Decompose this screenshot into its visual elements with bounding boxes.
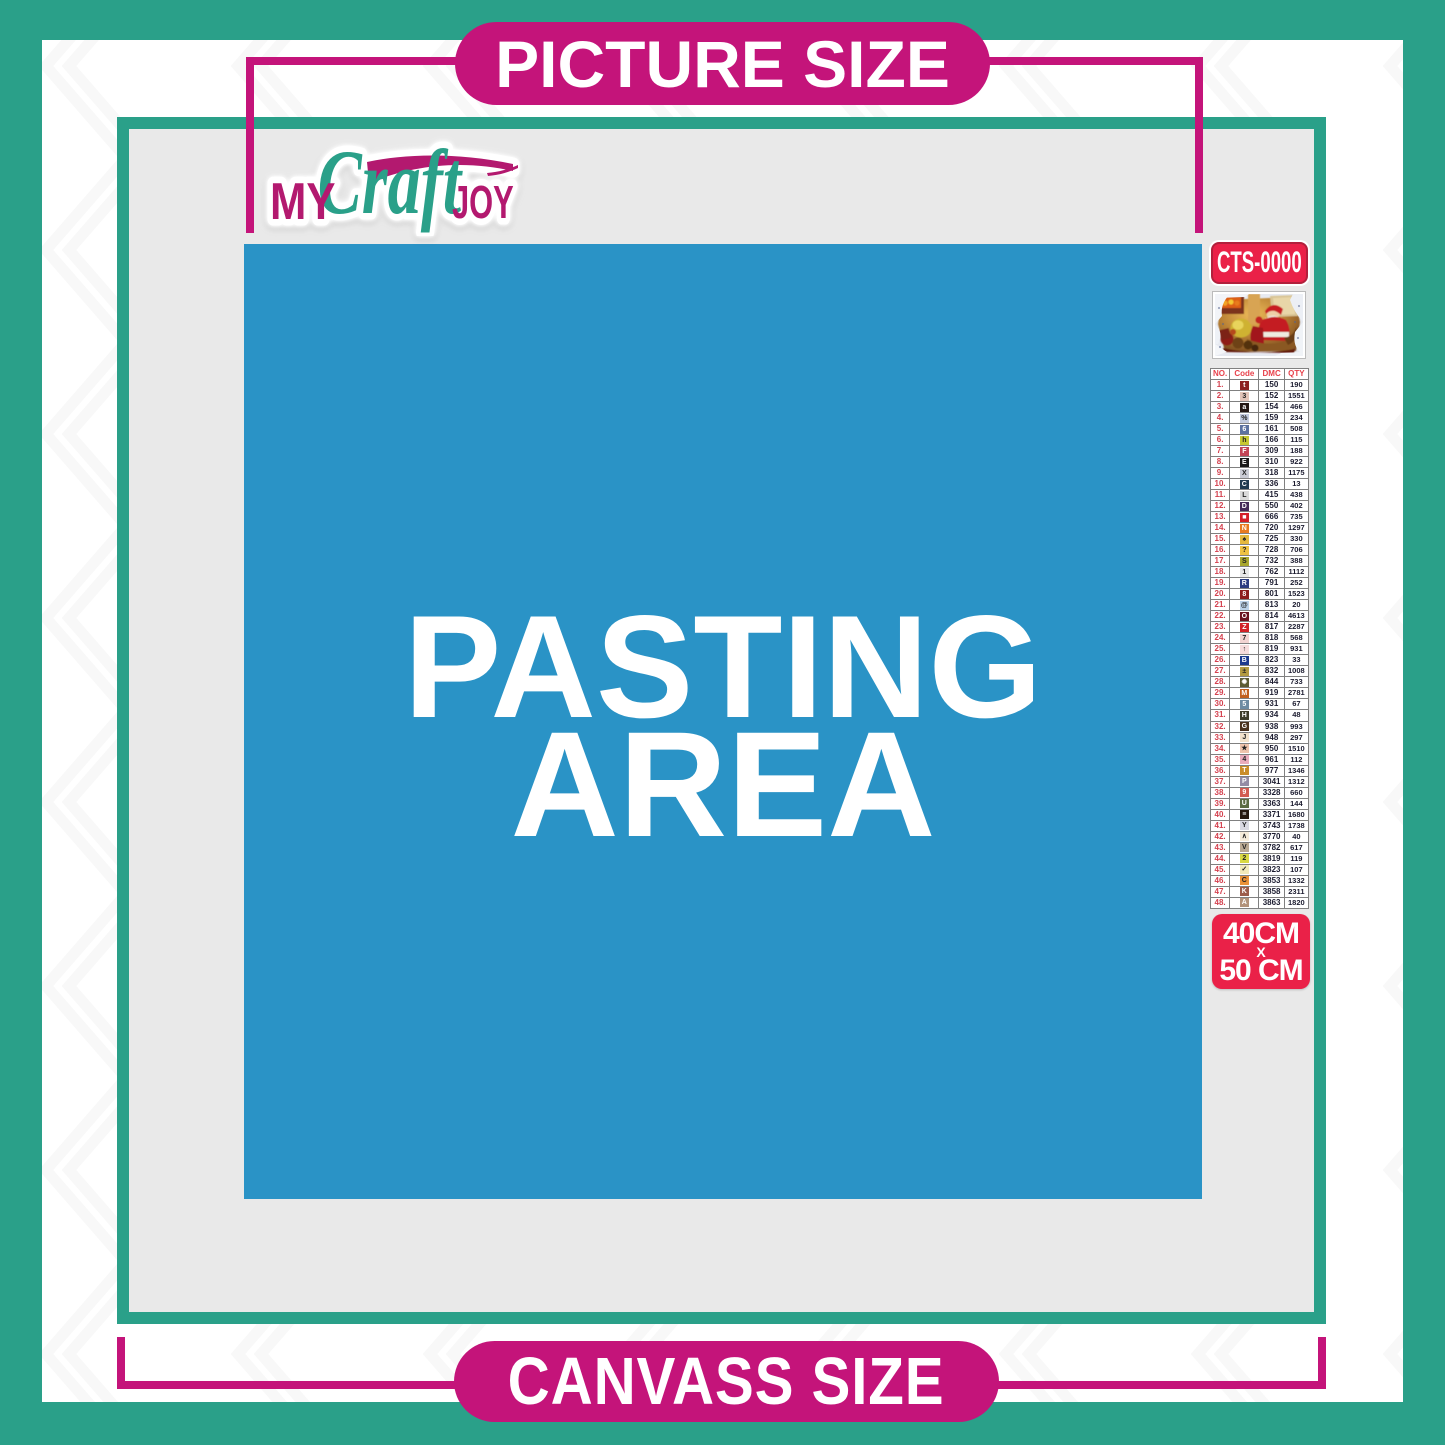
svg-text:Craft: Craft — [318, 136, 464, 234]
svg-text:JOY: JOY — [452, 178, 514, 229]
svg-text:MY: MY — [270, 174, 336, 231]
